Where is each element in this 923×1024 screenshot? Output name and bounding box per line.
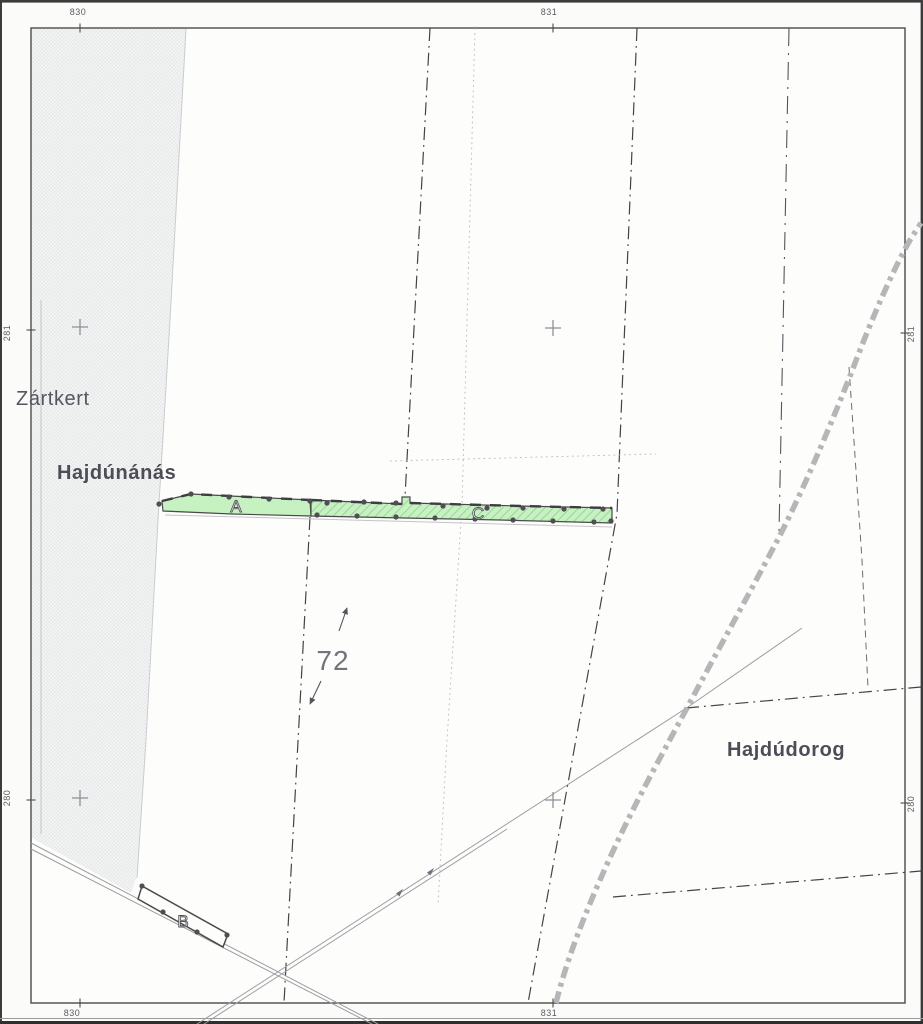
place-label-hajdunanas: Hajdúnánás [57,462,176,484]
place-label-hajdudorog: Hajdúdorog [727,739,845,761]
grid-label-left-280: 280 [2,790,12,807]
place-label-zartkert: Zártkert [16,388,90,410]
map-canvas: 830 831 830 831 281 280 281 280 Zártkert… [0,0,923,1024]
cadastral-map-sheet: 830 831 830 831 281 280 281 280 Zártkert… [0,0,923,1024]
scan-edge-top [0,0,923,3]
grid-label-right-280: 280 [906,796,916,813]
grid-label-top-831: 831 [541,7,558,17]
parcel-label-b: B [177,912,188,931]
grid-label-left-281: 281 [2,325,12,342]
grid-label-bottom-831: 831 [541,1008,558,1018]
parcel-label-a: A [230,497,242,516]
grid-label-right-281: 281 [906,326,916,343]
grid-label-top-830: 830 [70,7,87,17]
grid-label-bottom-830: 830 [64,1008,81,1018]
parcel-number-72: 72 [316,645,349,676]
scan-edge-left [0,0,2,1024]
parcel-label-c: C [472,504,484,523]
